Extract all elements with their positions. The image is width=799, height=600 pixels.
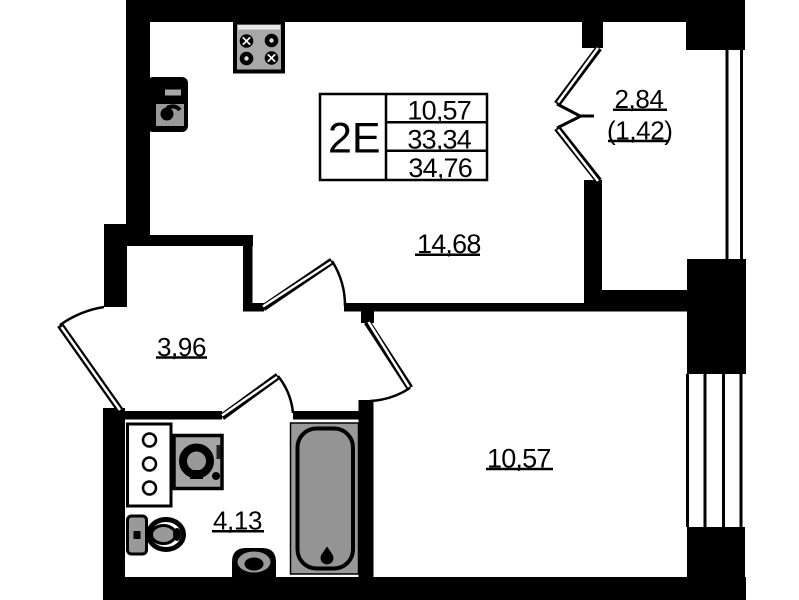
svg-text:33,34: 33,34 <box>407 125 471 155</box>
svg-text:34,76: 34,76 <box>408 153 472 183</box>
svg-text:2E: 2E <box>328 115 381 163</box>
svg-text:10,57: 10,57 <box>407 96 471 126</box>
